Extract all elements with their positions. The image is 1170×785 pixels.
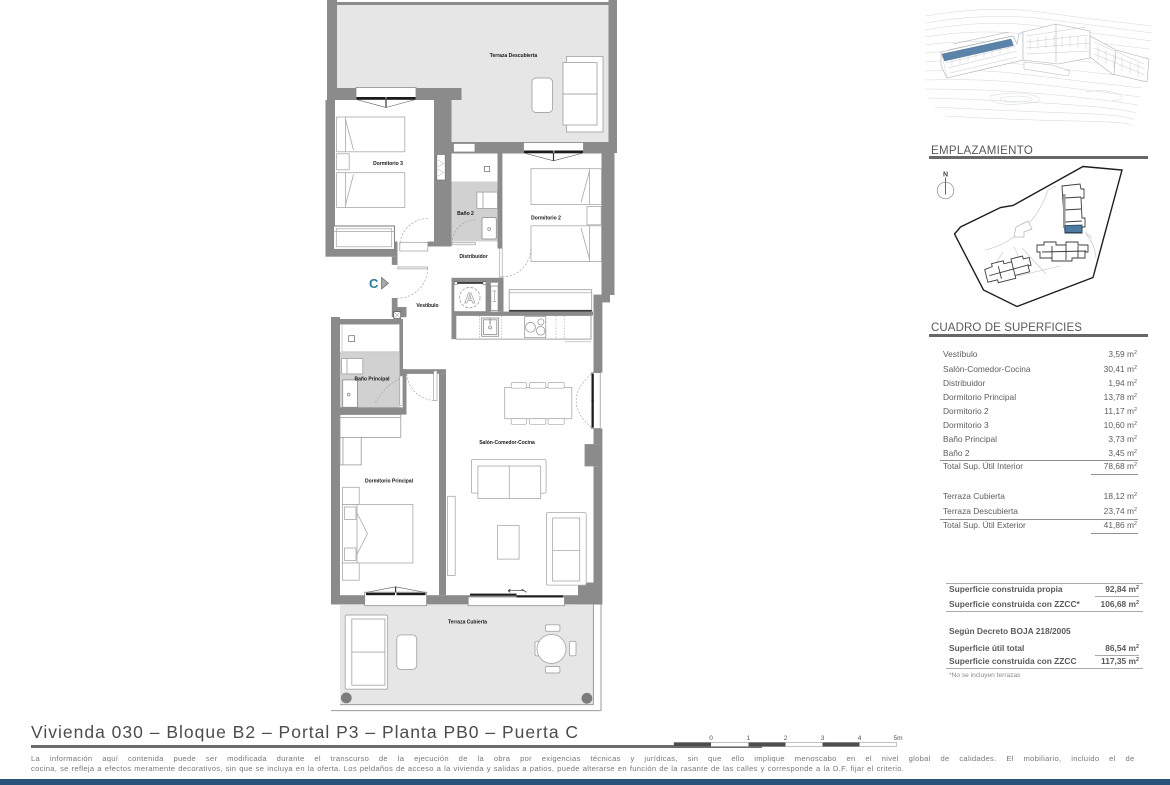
svg-text:Dormitorio 3: Dormitorio 3 [373, 161, 403, 167]
svg-text:Terraza Descubierta: Terraza Descubierta [490, 53, 538, 59]
svg-text:Terraza Cubierta: Terraza Cubierta [448, 620, 487, 626]
svg-text:Salón-Comedor-Cocina: Salón-Comedor-Cocina [479, 440, 535, 446]
svg-text:Dormitorio 2: Dormitorio 2 [531, 216, 561, 222]
svg-text:Baño 2: Baño 2 [457, 211, 474, 217]
svg-text:C: C [369, 276, 379, 291]
svg-text:Vestíbulo: Vestíbulo [416, 303, 438, 309]
svg-text:4: 4 [858, 735, 862, 742]
svg-text:Distribuidor: Distribuidor [459, 254, 487, 260]
svg-text:0: 0 [709, 735, 713, 742]
svg-text:2: 2 [784, 735, 788, 742]
svg-text:N: N [943, 172, 948, 179]
svg-text:3: 3 [821, 735, 825, 742]
svg-text:A: A [464, 290, 475, 307]
svg-text:1: 1 [747, 735, 751, 742]
svg-text:5m: 5m [893, 735, 902, 742]
svg-text:Baño Principal: Baño Principal [354, 377, 390, 383]
svg-text:Dormitorio Principal: Dormitorio Principal [365, 479, 414, 485]
